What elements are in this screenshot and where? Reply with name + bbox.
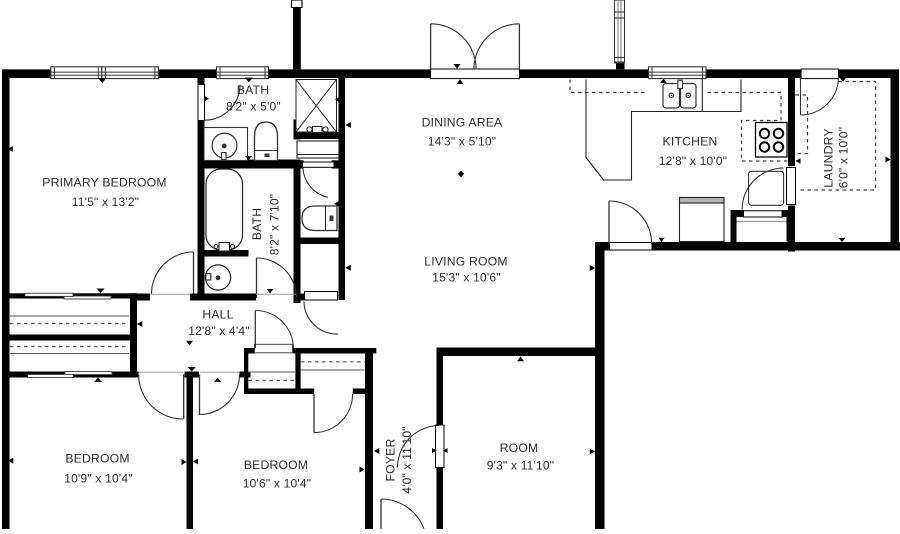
svg-text:DINING AREA: DINING AREA [422,116,503,130]
svg-text:FOYER: FOYER [384,439,398,482]
svg-text:BATH: BATH [250,208,264,240]
svg-text:12'8" x 10'0": 12'8" x 10'0" [659,154,727,168]
svg-text:BEDROOM: BEDROOM [244,458,308,472]
svg-text:LIVING ROOM: LIVING ROOM [424,255,507,269]
svg-text:15'3" x 10'6": 15'3" x 10'6" [432,271,500,285]
svg-text:LAUNDRY: LAUNDRY [821,128,835,187]
svg-text:10'9" x 10'4": 10'9" x 10'4" [64,472,132,486]
svg-text:4'0" x 11'10": 4'0" x 11'10" [400,426,414,494]
svg-text:12'8" x 4'4": 12'8" x 4'4" [188,324,250,338]
svg-text:11'5" x 13'2": 11'5" x 13'2" [72,195,140,209]
svg-text:HALL: HALL [202,308,233,322]
svg-text:8'2" x 7'10": 8'2" x 7'10" [268,194,282,256]
svg-text:BATH: BATH [237,83,269,97]
svg-text:14'3" x 5'10": 14'3" x 5'10" [428,135,496,149]
svg-text:KITCHEN: KITCHEN [663,135,718,149]
svg-text:BEDROOM: BEDROOM [65,452,129,466]
svg-text:8'2" x 5'0": 8'2" x 5'0" [226,100,281,114]
svg-text:9'3" x 11'10": 9'3" x 11'10" [487,459,555,473]
svg-text:10'6" x 10'4": 10'6" x 10'4" [243,477,311,491]
svg-text:6'0" x 10'0": 6'0" x 10'0" [837,127,851,189]
svg-text:PRIMARY BEDROOM: PRIMARY BEDROOM [42,176,166,190]
svg-text:ROOM: ROOM [500,441,539,455]
